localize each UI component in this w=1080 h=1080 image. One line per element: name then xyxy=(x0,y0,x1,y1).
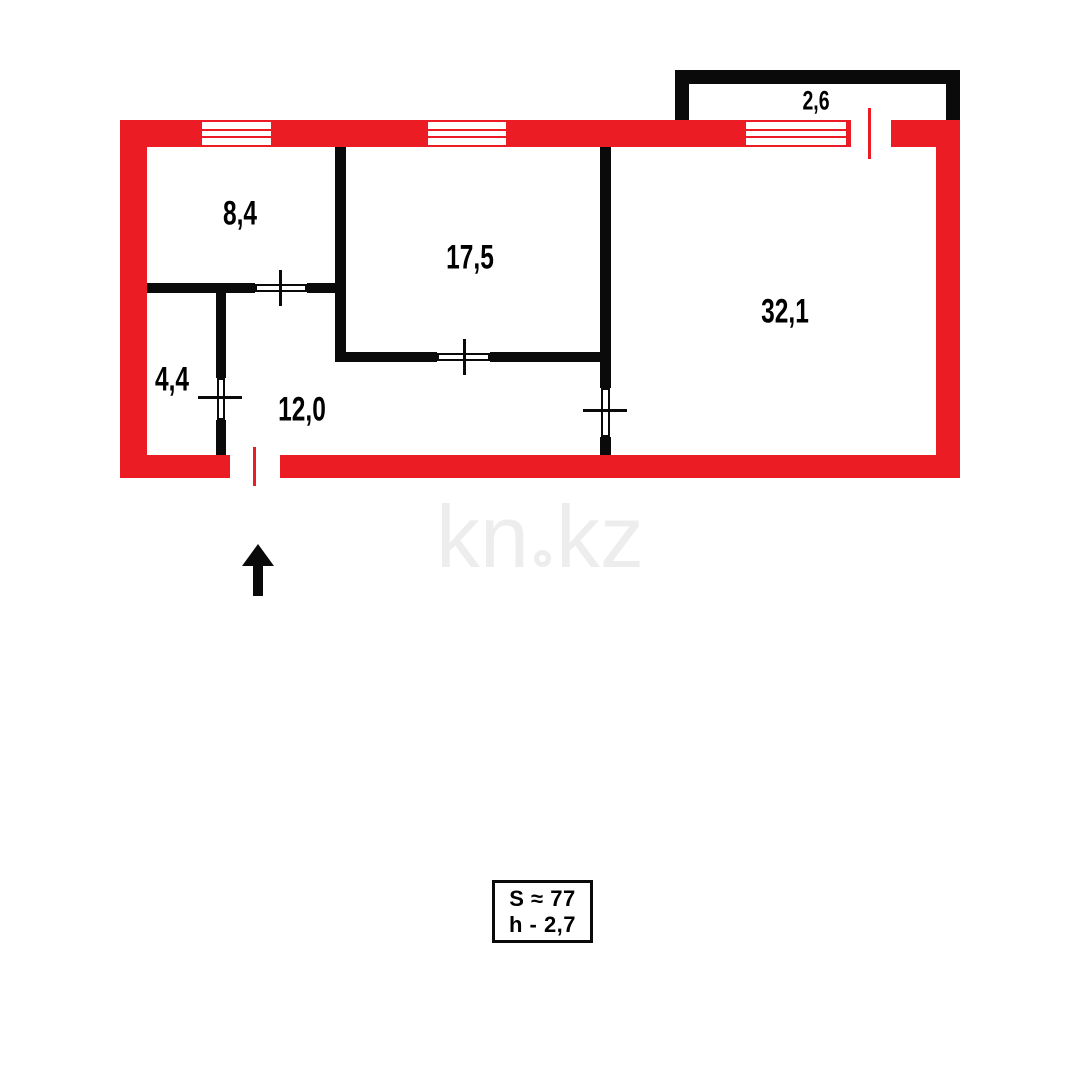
balcony-wall-right xyxy=(946,70,960,120)
wall-8-4-bottom-left xyxy=(147,283,255,293)
wall-17-5-bottom-right xyxy=(490,352,611,362)
window-room-17-5 xyxy=(426,120,508,147)
room-label-8-4: 8,4 xyxy=(223,195,257,234)
room-label-32-1: 32,1 xyxy=(761,293,809,332)
entrance-door-tick xyxy=(253,447,256,486)
door-room-4-4-tick xyxy=(198,396,242,399)
wall-17-5-left xyxy=(335,147,346,362)
watermark-dot-icon xyxy=(534,550,551,567)
info-box: S ≈ 77 h - 2,7 xyxy=(492,880,593,943)
door-room-4-4 xyxy=(217,378,225,420)
door-room-17-5-tick xyxy=(463,339,466,375)
balcony-wall-left xyxy=(675,70,689,120)
exterior-wall-left xyxy=(120,120,147,478)
wall-32-1-left-upper xyxy=(600,147,611,388)
balcony-wall-top xyxy=(675,70,960,84)
wall-4-4-right-upper xyxy=(216,293,226,378)
info-ceiling-height: h - 2,7 xyxy=(509,912,576,938)
door-room-8-4-tick xyxy=(279,270,282,306)
watermark-part2: kz xyxy=(556,487,644,586)
door-room-32-1-tick xyxy=(583,409,627,412)
room-label-17-5: 17,5 xyxy=(446,239,494,278)
door-room-32-1 xyxy=(601,388,610,437)
exterior-wall-right xyxy=(936,120,960,478)
room-label-12-0: 12,0 xyxy=(278,391,326,430)
kn-kz-watermark: knkz xyxy=(436,486,644,588)
wall-4-4-right-lower xyxy=(216,420,226,455)
room-label-4-4: 4,4 xyxy=(155,361,189,400)
watermark-part1: kn xyxy=(436,487,529,586)
wall-17-5-bottom-left xyxy=(335,352,437,362)
wall-32-1-left-lower xyxy=(600,437,611,455)
balcony-door-tick xyxy=(868,108,871,159)
wall-8-4-bottom-right xyxy=(307,283,346,293)
window-room-8-4 xyxy=(200,120,273,147)
info-area: S ≈ 77 xyxy=(509,886,575,912)
window-balcony xyxy=(744,120,848,147)
balcony-door-opening xyxy=(851,120,891,147)
balcony-label-2-6: 2,6 xyxy=(802,86,829,117)
floor-plan-canvas: knkz 8,4 17,5 32,1 4,4 12,0 2,6 xyxy=(0,0,1080,1080)
